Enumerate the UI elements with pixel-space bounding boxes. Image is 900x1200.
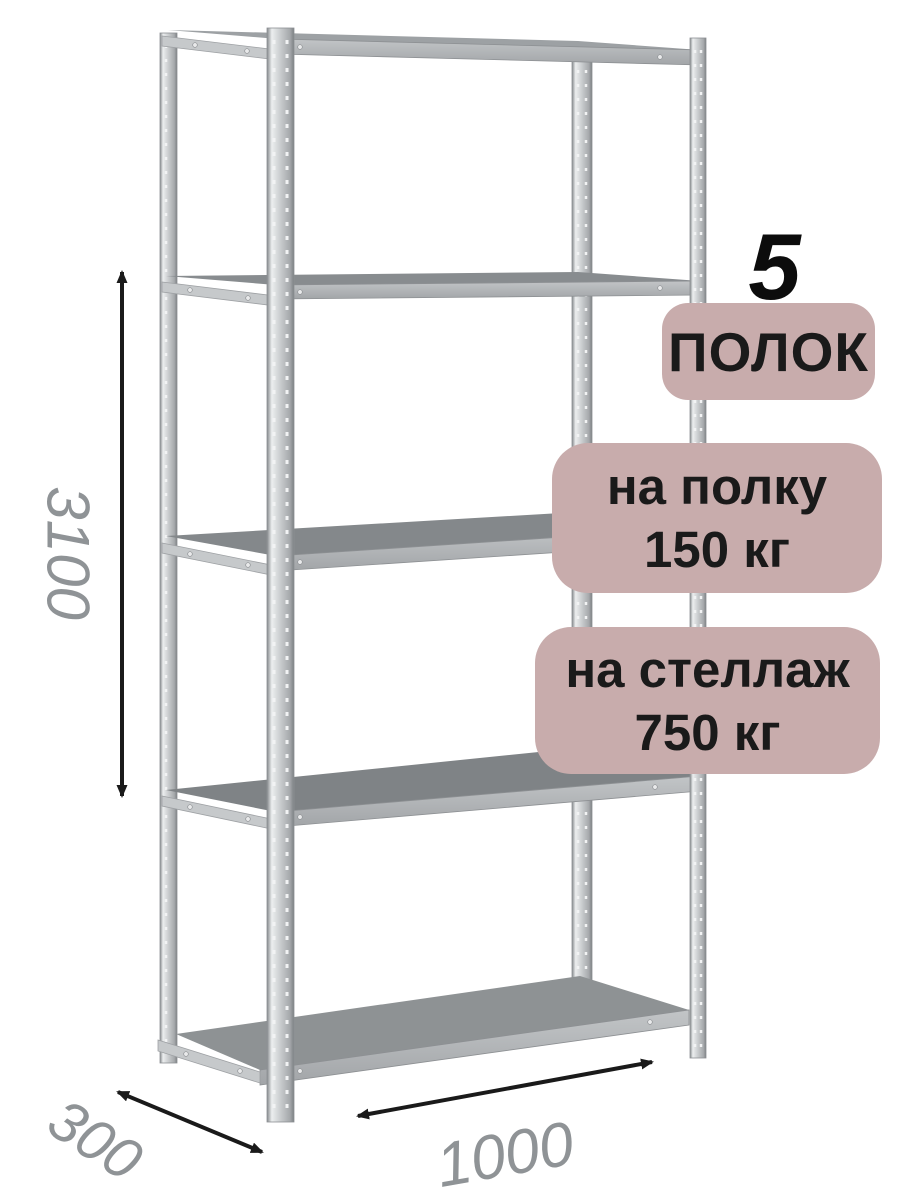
shelving-rack-illustration <box>0 0 900 1200</box>
per-rack-load-line1: на стеллаж <box>565 638 849 701</box>
per-shelf-load-line1: на полку <box>607 455 827 518</box>
rack-post-front-left <box>267 28 294 1122</box>
shelf-count-number: 5 <box>722 220 827 314</box>
per-rack-load-line2: 750 кг <box>634 701 780 764</box>
shelf-1 <box>162 30 700 65</box>
shelf-2 <box>162 272 700 306</box>
width-dimension-arrow <box>358 1062 652 1116</box>
per-shelf-load-badge: на полку 150 кг <box>552 443 882 593</box>
height-dimension-label: 3100 <box>34 486 103 619</box>
per-shelf-load-line2: 150 кг <box>644 518 790 581</box>
product-image: 5 ПОЛОК на полку 150 кг на стеллаж 750 к… <box>0 0 900 1200</box>
per-rack-load-badge: на стеллаж 750 кг <box>535 627 880 774</box>
shelf-count-badge-label: ПОЛОК <box>668 320 869 384</box>
